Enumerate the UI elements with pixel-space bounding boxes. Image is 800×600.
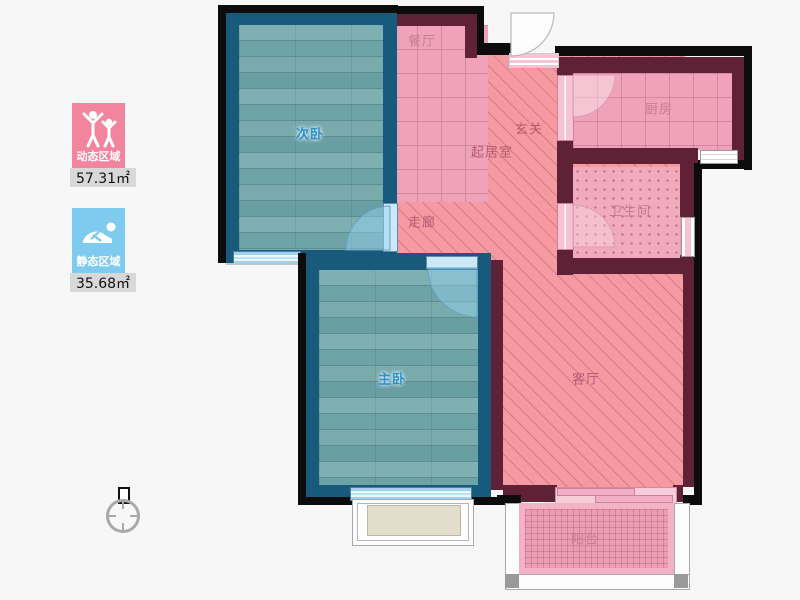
floorplan-viewer: { "legend": { "dynamic": { "label": "动态区… <box>0 0 800 600</box>
wall <box>557 258 694 274</box>
legend-dynamic-card: 动态区域 <box>72 103 125 168</box>
wall <box>388 13 468 26</box>
people-cheering-icon <box>80 110 118 148</box>
legend-static-value: 35.68㎡ <box>70 273 136 292</box>
label-living-room: 客厅 <box>572 369 600 388</box>
compass-circle <box>106 499 140 533</box>
label-corridor: 走廊 <box>408 212 436 231</box>
door-leaf <box>383 203 398 252</box>
label-bathroom: 卫生间 <box>609 201 651 220</box>
wall <box>680 255 694 274</box>
window <box>700 150 738 164</box>
legend-dynamic-label: 动态区域 <box>77 148 121 164</box>
wall <box>732 57 744 157</box>
balcony-frame-corner <box>674 574 688 588</box>
wall <box>226 13 391 25</box>
door-leaf <box>557 203 574 250</box>
balcony-window-frame <box>505 574 690 590</box>
label-balcony: 阳台 <box>571 529 599 548</box>
wall-outline <box>298 253 306 505</box>
legend-dynamic-value: 57.31㎡ <box>70 168 136 187</box>
person-resting-icon <box>79 219 119 253</box>
wall-outline <box>218 5 398 13</box>
wall <box>557 57 744 73</box>
wall <box>491 260 503 490</box>
wall <box>306 260 319 497</box>
wall-outline <box>298 497 355 505</box>
label-entry: 玄关 <box>515 119 543 138</box>
door-leaf <box>426 256 478 269</box>
legend-static-card: 静态区域 <box>72 208 125 273</box>
entrance-door-swing <box>511 13 554 56</box>
bay-window <box>352 499 474 546</box>
wall <box>557 148 698 164</box>
label-secondary-bedroom: 次卧 <box>296 124 324 143</box>
wall-outline <box>218 5 226 263</box>
wall-outline <box>388 6 480 14</box>
wall <box>557 57 573 75</box>
wall <box>478 253 491 497</box>
wall <box>226 13 239 263</box>
balcony-frame-corner <box>505 574 519 588</box>
door-leaf <box>557 75 574 141</box>
wall <box>465 13 477 58</box>
wall-outline <box>555 46 752 56</box>
wall-outline <box>470 497 503 505</box>
legend-static-label: 静态区域 <box>77 253 121 269</box>
label-master-bedroom: 主卧 <box>378 369 406 388</box>
label-kitchen: 厨房 <box>645 99 673 118</box>
wall-outline <box>477 43 511 55</box>
wall <box>683 274 694 487</box>
window <box>681 217 695 257</box>
label-dining: 餐厅 <box>408 31 436 50</box>
window-sill <box>226 263 304 265</box>
wall-outline <box>694 163 702 505</box>
wall-outline <box>744 46 752 170</box>
label-living-core: 起居室 <box>471 142 513 161</box>
entrance-threshold <box>509 53 559 68</box>
wall <box>680 163 694 217</box>
